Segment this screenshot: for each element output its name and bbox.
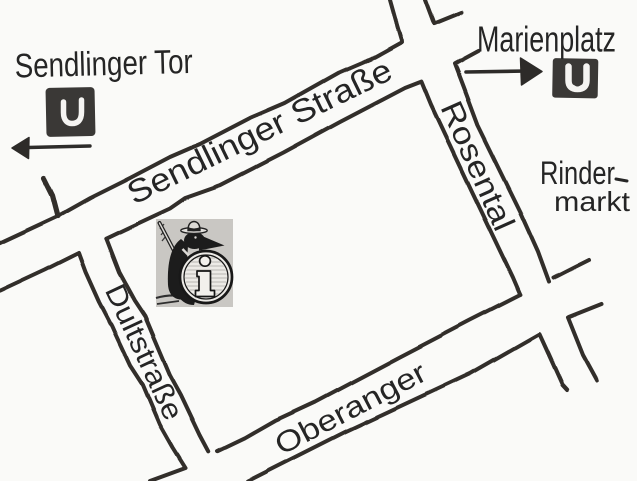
svg-text:Sendlinger Tor: Sendlinger Tor: [14, 43, 193, 86]
svg-text:Marienplatz: Marienplatz: [477, 19, 616, 60]
svg-text:markt: markt: [554, 186, 630, 217]
